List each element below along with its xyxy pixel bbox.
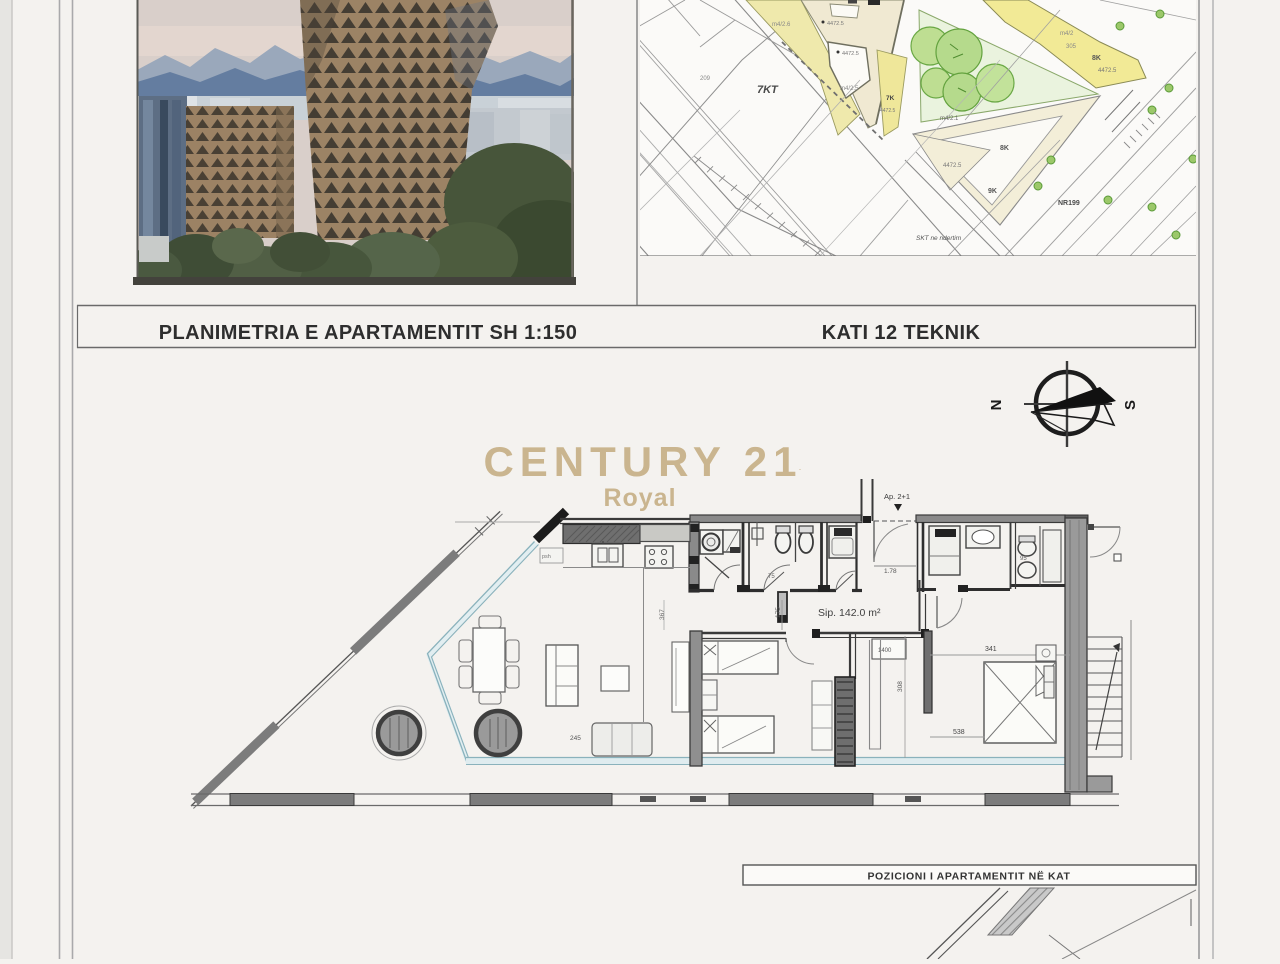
svg-text:75: 75	[768, 574, 775, 580]
svg-text:4472.5: 4472.5	[880, 108, 896, 114]
svg-text:175: 175	[775, 607, 782, 618]
svg-text:NR199: NR199	[1058, 200, 1080, 207]
svg-text:CENTURY 21: CENTURY 21	[483, 438, 802, 485]
svg-text:m4/2.1: m4/2.1	[940, 116, 959, 122]
svg-text:341: 341	[985, 646, 997, 653]
svg-text:9K: 9K	[988, 188, 997, 195]
svg-text:4472.5: 4472.5	[842, 51, 859, 57]
svg-text:Ap. 2+1: Ap. 2+1	[884, 492, 910, 501]
svg-text:N: N	[988, 400, 1005, 411]
svg-text:7K: 7K	[886, 95, 895, 102]
svg-text:S: S	[1122, 400, 1139, 410]
svg-text:305: 305	[1066, 44, 1077, 50]
svg-text:m4/2.6: m4/2.6	[772, 22, 791, 28]
svg-text:1.78: 1.78	[884, 568, 897, 575]
svg-text:308: 308	[897, 681, 904, 692]
svg-text:POZICIONI I APARTAMENTIT NË KA: POZICIONI I APARTAMENTIT NË KAT	[867, 870, 1070, 883]
svg-text:m4/2: m4/2	[1060, 31, 1074, 37]
svg-text:8K: 8K	[1092, 55, 1101, 62]
svg-text:4472.5: 4472.5	[943, 163, 962, 169]
svg-text:PLANIMETRIA E APARTAMENTIT SH: PLANIMETRIA E APARTAMENTIT SH 1:150	[159, 322, 577, 344]
svg-text:.: .	[799, 462, 802, 472]
svg-text:95: 95	[1020, 556, 1027, 562]
svg-text:m4/2.5: m4/2.5	[840, 86, 859, 92]
svg-text:KATI 12 TEKNIK: KATI 12 TEKNIK	[822, 322, 981, 344]
svg-text:4472.5: 4472.5	[1098, 68, 1117, 74]
svg-text:Royal: Royal	[603, 484, 676, 512]
svg-text:Sip. 142.0 m²: Sip. 142.0 m²	[818, 607, 881, 619]
svg-text:7KT: 7KT	[757, 84, 779, 96]
svg-text:8K: 8K	[1000, 145, 1009, 152]
svg-text:367: 367	[659, 609, 666, 620]
svg-text:245: 245	[570, 735, 581, 742]
svg-text:209: 209	[700, 76, 711, 82]
svg-text:psh: psh	[542, 554, 551, 560]
svg-text:538: 538	[953, 729, 965, 736]
svg-text:SKT ne ndertim: SKT ne ndertim	[916, 235, 962, 242]
svg-text:4472.5: 4472.5	[827, 21, 844, 27]
